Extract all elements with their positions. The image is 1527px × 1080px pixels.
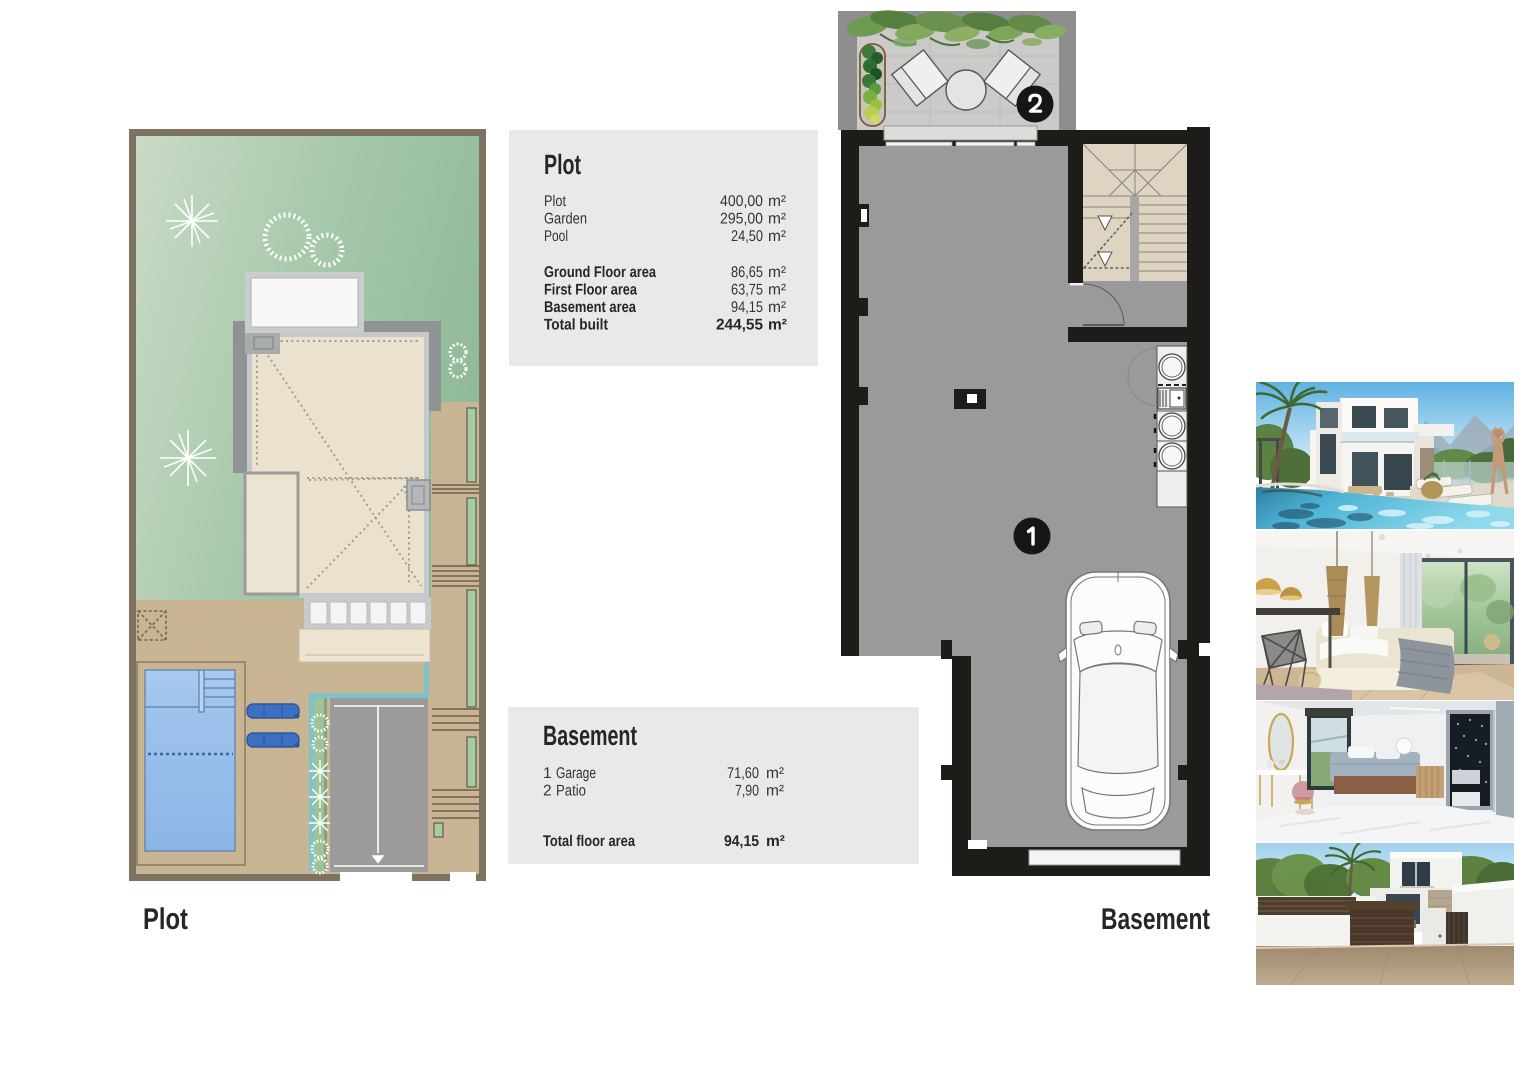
- svg-text:1: 1: [543, 765, 552, 782]
- svg-text:94,15: 94,15: [724, 833, 759, 850]
- svg-text:71,60: 71,60: [727, 765, 759, 782]
- svg-text:Plot: Plot: [143, 903, 188, 936]
- svg-text:Plot: Plot: [544, 149, 581, 180]
- svg-text:2: 2: [543, 783, 552, 800]
- svg-text:Total floor area: Total floor area: [543, 833, 635, 850]
- svg-text:94,15: 94,15: [731, 299, 763, 316]
- svg-text:m²: m²: [768, 193, 786, 210]
- svg-text:86,65: 86,65: [731, 264, 763, 281]
- svg-text:244,55: 244,55: [716, 317, 763, 334]
- svg-text:Basement: Basement: [1101, 903, 1210, 936]
- svg-text:m²: m²: [768, 228, 786, 245]
- svg-text:Basement area: Basement area: [544, 299, 636, 316]
- svg-text:63,75: 63,75: [731, 282, 763, 299]
- svg-text:m²: m²: [766, 783, 784, 800]
- svg-text:m²: m²: [766, 833, 785, 850]
- svg-text:First Floor area: First Floor area: [544, 282, 637, 299]
- svg-text:Garage: Garage: [556, 765, 596, 782]
- svg-text:295,00: 295,00: [720, 211, 763, 228]
- svg-text:m²: m²: [768, 299, 786, 316]
- svg-text:Garden: Garden: [544, 211, 587, 228]
- svg-text:m²: m²: [766, 765, 784, 782]
- svg-text:Total built: Total built: [544, 317, 608, 334]
- svg-text:7,90: 7,90: [735, 783, 759, 800]
- svg-text:24,50: 24,50: [731, 228, 763, 245]
- svg-text:m²: m²: [768, 282, 786, 299]
- svg-text:m²: m²: [768, 317, 787, 334]
- svg-text:Pool: Pool: [544, 228, 568, 245]
- svg-text:400,00: 400,00: [720, 193, 763, 210]
- svg-text:Patio: Patio: [556, 783, 586, 800]
- svg-text:Ground Floor area: Ground Floor area: [544, 264, 656, 281]
- svg-text:Plot: Plot: [544, 193, 567, 210]
- svg-text:m²: m²: [768, 264, 786, 281]
- svg-text:m²: m²: [768, 211, 786, 228]
- svg-text:Basement: Basement: [543, 720, 637, 751]
